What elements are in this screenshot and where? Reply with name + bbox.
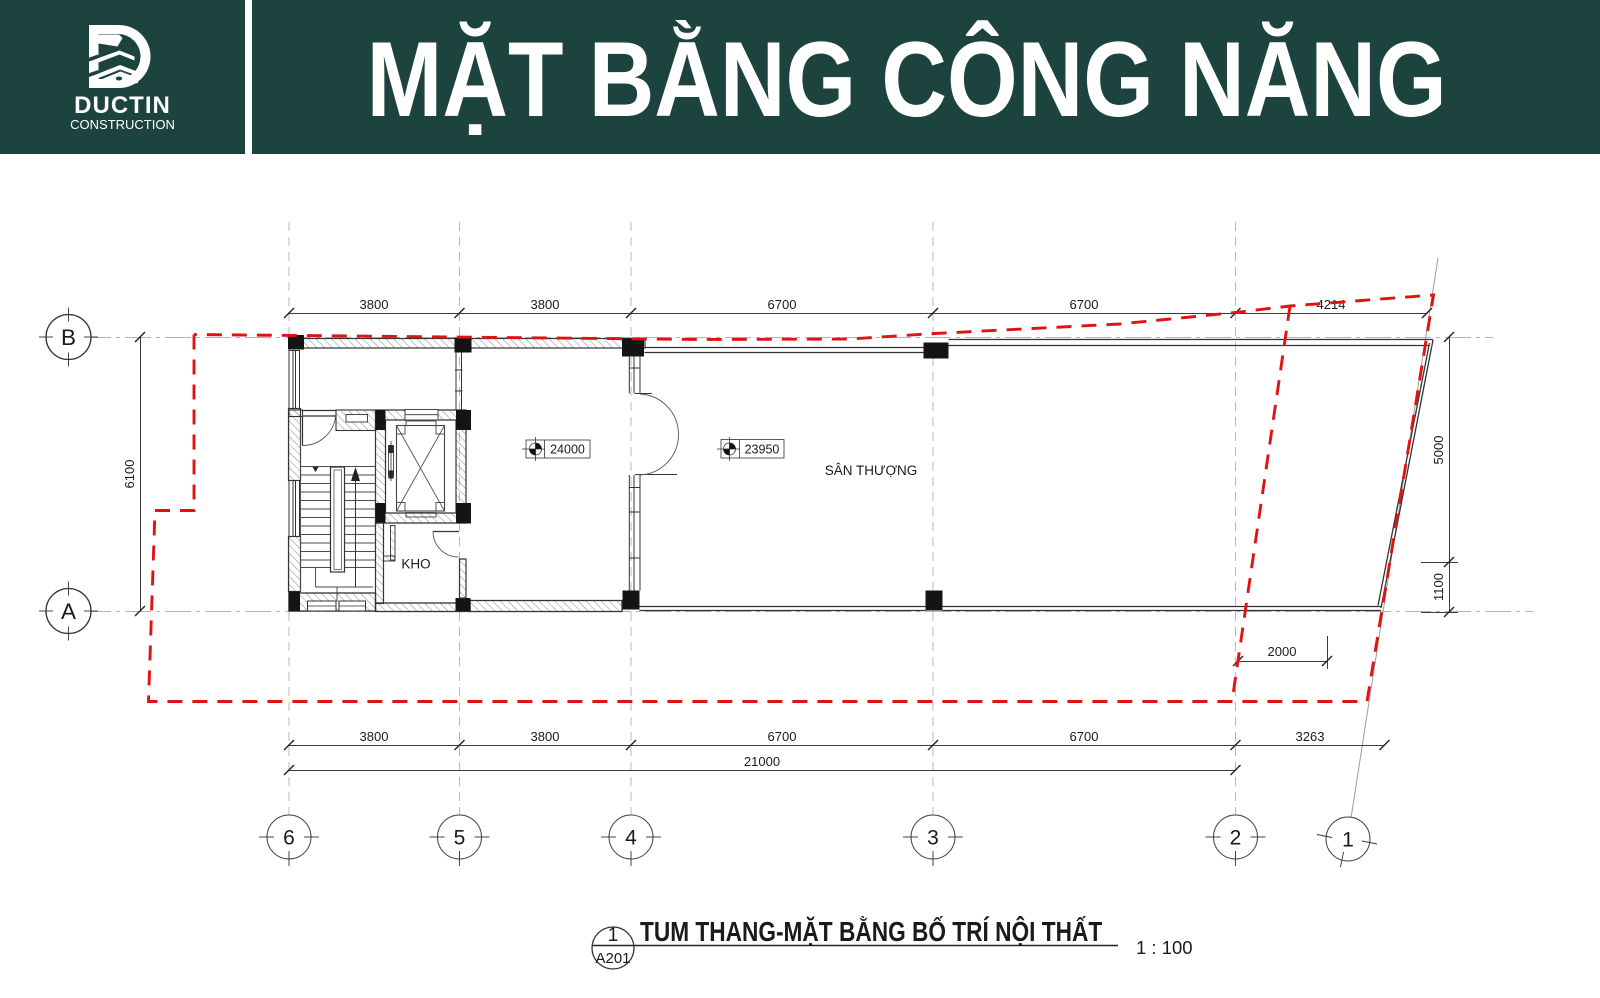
svg-text:3800: 3800 <box>360 729 389 744</box>
svg-text:B: B <box>61 325 76 350</box>
svg-text:4: 4 <box>625 827 637 850</box>
svg-text:1: 1 <box>608 925 619 946</box>
svg-text:1: 1 <box>1342 829 1354 852</box>
svg-text:2000: 2000 <box>1268 644 1297 659</box>
svg-text:3: 3 <box>927 827 939 850</box>
svg-text:24000: 24000 <box>550 443 585 457</box>
svg-text:TUM THANG-MẶT BẰNG BỐ TRÍ NỘI: TUM THANG-MẶT BẰNG BỐ TRÍ NỘI THẤT <box>640 915 1103 948</box>
svg-text:2: 2 <box>1230 827 1242 850</box>
svg-text:21000: 21000 <box>744 754 780 769</box>
svg-text:6700: 6700 <box>768 729 797 744</box>
svg-text:KHO: KHO <box>401 557 430 572</box>
svg-text:3263: 3263 <box>1296 729 1325 744</box>
svg-text:4214: 4214 <box>1317 297 1346 312</box>
svg-text:6: 6 <box>283 827 295 850</box>
svg-text:23950: 23950 <box>745 443 780 457</box>
svg-text:1 : 100: 1 : 100 <box>1136 937 1193 958</box>
svg-text:5000: 5000 <box>1431 436 1446 465</box>
svg-text:3800: 3800 <box>531 729 560 744</box>
svg-text:5: 5 <box>454 827 466 850</box>
svg-text:A: A <box>61 599 76 624</box>
svg-text:1100: 1100 <box>1431 573 1446 601</box>
svg-text:6100: 6100 <box>122 460 137 489</box>
svg-text:A201: A201 <box>595 950 630 967</box>
svg-text:6700: 6700 <box>768 297 797 312</box>
svg-text:6700: 6700 <box>1070 729 1099 744</box>
svg-text:3800: 3800 <box>531 297 560 312</box>
svg-text:6700: 6700 <box>1070 297 1099 312</box>
svg-text:3800: 3800 <box>360 297 389 312</box>
svg-text:SÂN THƯỢNG: SÂN THƯỢNG <box>825 463 918 478</box>
